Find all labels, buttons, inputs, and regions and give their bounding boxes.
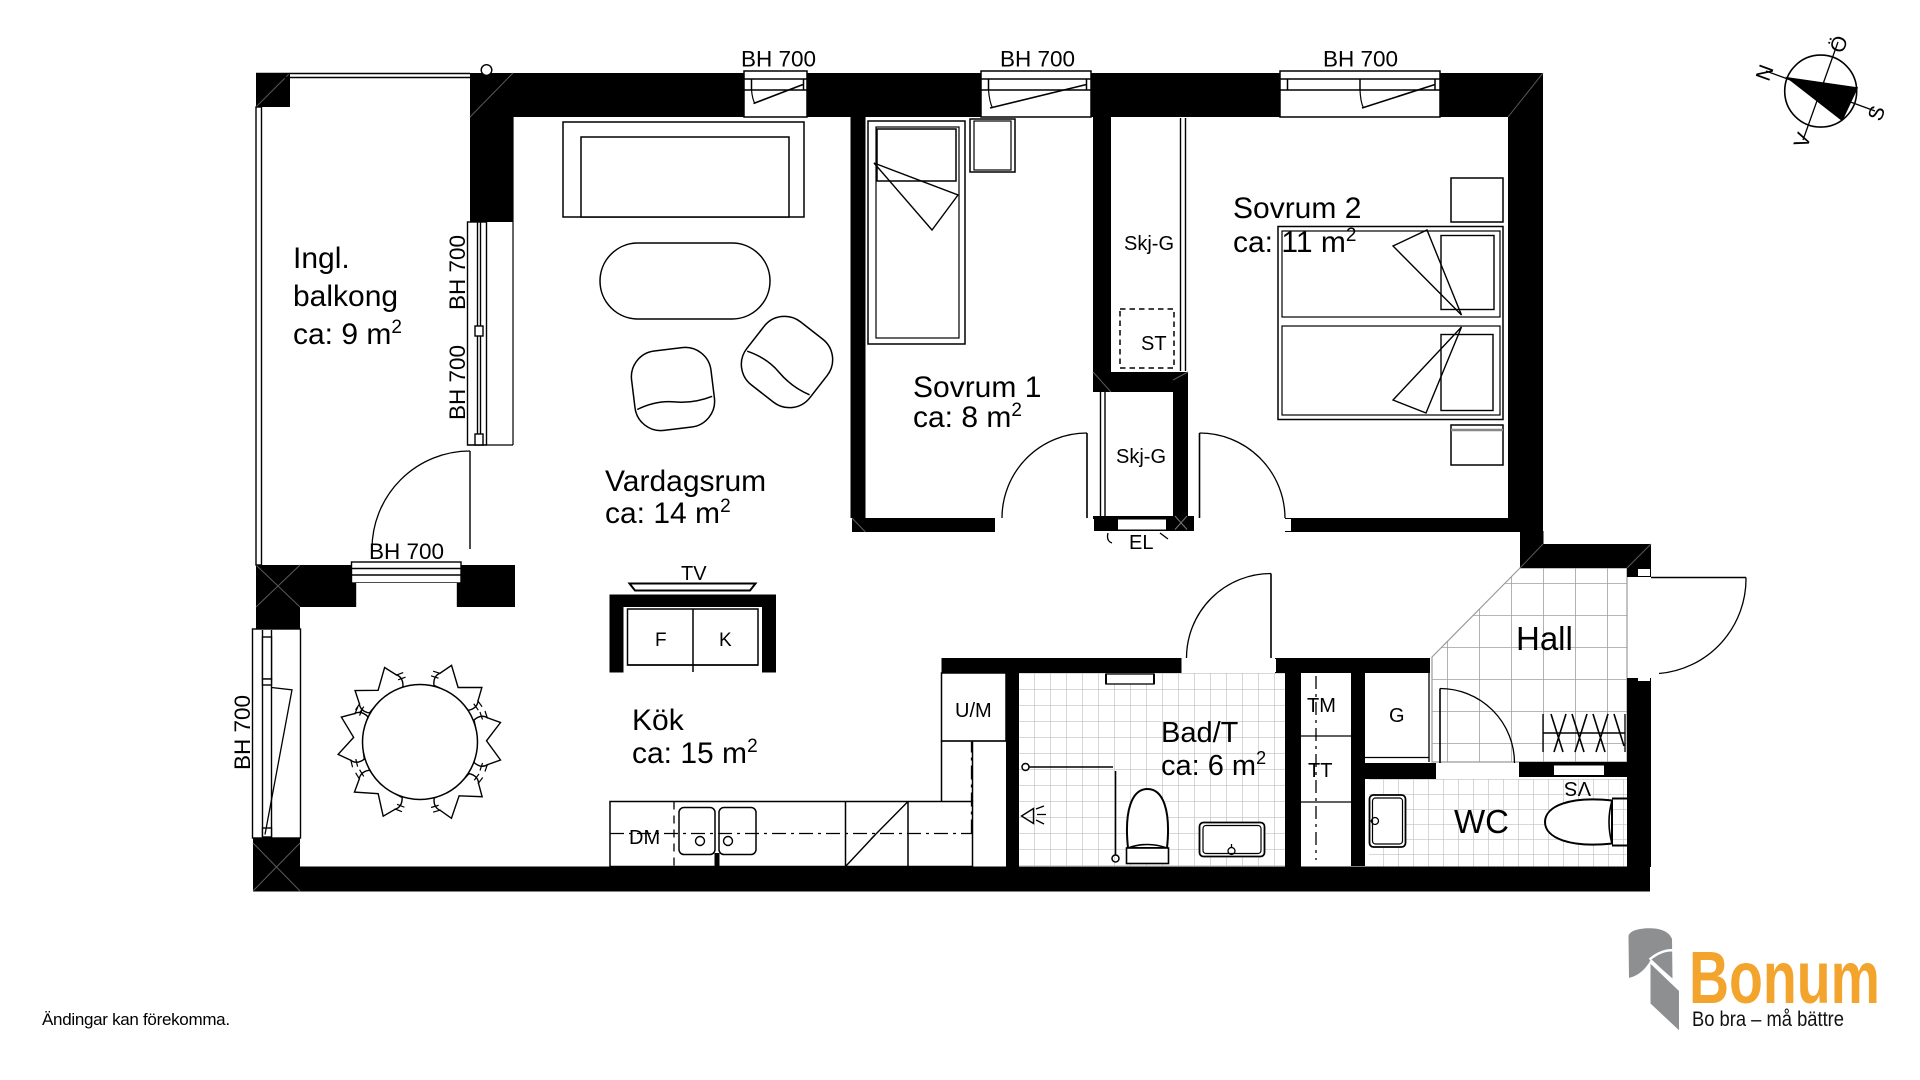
svg-text:Hall: Hall — [1516, 620, 1573, 657]
svg-text:ca: 15 m2: ca: 15 m2 — [632, 736, 758, 770]
svg-text:BH 700: BH 700 — [1323, 47, 1398, 72]
svg-text:Sovrum 1: Sovrum 1 — [913, 371, 1041, 404]
svg-text:ca: 6 m2: ca: 6 m2 — [1161, 748, 1266, 782]
svg-text:TM: TM — [1307, 695, 1336, 717]
svg-text:BH 700: BH 700 — [741, 47, 816, 72]
svg-text:WC: WC — [1454, 803, 1509, 840]
svg-text:Bad/T: Bad/T — [1161, 717, 1239, 749]
svg-text:Bo bra – må bättre: Bo bra – må bättre — [1692, 1007, 1844, 1031]
svg-text:Skj-G: Skj-G — [1116, 446, 1166, 468]
svg-text:Sovrum 2: Sovrum 2 — [1233, 192, 1361, 225]
svg-text:TT: TT — [1308, 760, 1332, 782]
svg-text:BH 700: BH 700 — [1000, 47, 1075, 72]
svg-text:Ingl.: Ingl. — [293, 242, 350, 275]
svg-text:Ändingar kan förekomma.: Ändingar kan förekomma. — [42, 1010, 230, 1029]
svg-text:G: G — [1389, 705, 1405, 727]
svg-text:TV: TV — [681, 563, 707, 585]
svg-text:Kök: Kök — [632, 704, 685, 737]
svg-text:F: F — [655, 630, 667, 651]
svg-text:ST: ST — [1141, 333, 1167, 355]
svg-text:BH 700: BH 700 — [230, 695, 255, 770]
svg-text:ca: 8 m2: ca: 8 m2 — [913, 400, 1022, 434]
svg-text:U/M: U/M — [955, 700, 992, 722]
svg-text:ca: 9 m2: ca: 9 m2 — [293, 317, 402, 351]
svg-text:BH 700: BH 700 — [445, 345, 470, 420]
svg-text:balkong: balkong — [293, 280, 398, 313]
svg-text:K: K — [719, 630, 732, 651]
svg-text:Skj-G: Skj-G — [1124, 233, 1174, 255]
svg-text:DM: DM — [629, 827, 660, 849]
svg-text:Vardagsrum: Vardagsrum — [605, 465, 766, 498]
svg-text:EL: EL — [1129, 532, 1153, 554]
svg-text:BH 700: BH 700 — [445, 235, 470, 310]
svg-text:VS: VS — [1564, 777, 1591, 799]
svg-text:ca: 14 m2: ca: 14 m2 — [605, 496, 731, 530]
svg-text:BH 700: BH 700 — [369, 539, 444, 564]
svg-text:ca: 11 m2: ca: 11 m2 — [1233, 225, 1356, 259]
